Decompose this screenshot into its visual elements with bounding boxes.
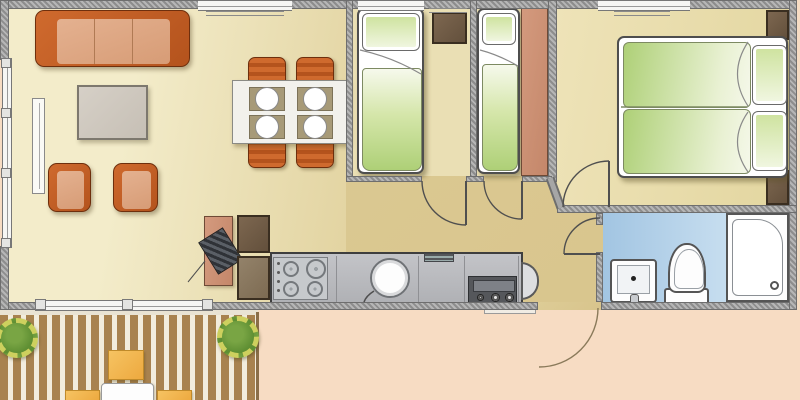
wall-bathroom-left: [596, 252, 603, 302]
four-burner-hob: [273, 257, 328, 300]
window-post: [122, 299, 133, 310]
window-master-top: [598, 0, 690, 11]
sofa-cushion-divider: [94, 19, 95, 64]
armchair-cushion: [57, 171, 84, 209]
armchair-left: [48, 163, 91, 212]
wall-left-upper: [0, 0, 9, 60]
window-post: [202, 299, 213, 310]
wall-bathroom-left-stub: [596, 213, 603, 225]
counter-section-line: [464, 256, 465, 302]
hob-knob: [277, 262, 280, 265]
burner: [306, 259, 326, 279]
wall-bedrooms-bottom-c: [522, 176, 552, 182]
deck-table: [101, 383, 154, 400]
window-post: [1, 238, 11, 248]
deck-chair-right: [157, 390, 192, 400]
single-bed-2: [477, 8, 520, 174]
window-sill: [614, 11, 670, 16]
dining-table: [232, 80, 349, 144]
wall-bedroom1-bedroom2: [470, 0, 477, 182]
round-kitchen-sink: [370, 258, 410, 298]
burner: [283, 281, 299, 297]
window-post: [1, 168, 11, 178]
bed-pillow: [753, 112, 786, 170]
burner: [283, 261, 299, 277]
wall-bedrooms-bottom-b: [466, 176, 484, 182]
plate: [255, 115, 279, 139]
single-bed-1: [357, 8, 424, 174]
counter-section-line: [518, 256, 519, 302]
bed-pillow: [483, 14, 515, 44]
sofa: [35, 10, 190, 67]
bed-blanket: [482, 64, 518, 171]
counter-vent: [424, 253, 454, 262]
kitchen-cabinet-lower: [237, 256, 270, 300]
oven-handle: [473, 280, 515, 292]
mattress-half-bottom: [623, 109, 751, 174]
window-sill: [429, 8, 467, 13]
shower-tray: [726, 213, 789, 302]
toilet-bowl: [668, 243, 706, 293]
plate: [255, 87, 279, 111]
window-post: [1, 58, 11, 68]
window-living-left: [2, 58, 12, 248]
bed-pillow: [363, 14, 419, 50]
wall-bedroom2-master: [548, 0, 557, 182]
floor-plan: [0, 0, 800, 400]
bed-blanket: [362, 68, 422, 171]
armchair-cushion: [122, 171, 151, 209]
wall-master-bathroom: [557, 205, 797, 213]
oven: [468, 276, 517, 303]
tall-wardrobe: [521, 2, 548, 176]
coffee-table: [77, 85, 148, 140]
wall-bedroom1-left: [346, 0, 353, 182]
hob-knob: [277, 280, 280, 283]
window-living-top: [198, 0, 292, 11]
armchair-right: [113, 163, 158, 212]
window-bedroom1-top: [358, 0, 424, 11]
sink-drain: [631, 276, 636, 281]
double-bed: [617, 36, 788, 178]
door-arc-entrance: [539, 308, 598, 367]
wall-left-lower: [0, 246, 9, 310]
deck-chair-top: [108, 350, 144, 380]
hob-knob: [277, 271, 280, 274]
plate: [303, 87, 327, 111]
mattress-half-top: [623, 42, 751, 108]
shower-drain: [770, 281, 779, 290]
sofa-cushions: [57, 19, 170, 64]
counter-section-line: [418, 256, 419, 302]
oven-dial: [505, 293, 514, 302]
burner: [307, 281, 323, 297]
hob-knob: [277, 289, 280, 292]
oven-dial: [491, 293, 500, 302]
bedroom1-wardrobe: [432, 12, 467, 44]
deck-chair-left: [65, 390, 100, 400]
kitchen-cabinet-upper: [237, 215, 270, 253]
plate: [303, 115, 327, 139]
bed-pillow: [753, 46, 786, 104]
window-sill: [206, 11, 284, 16]
radiator: [32, 98, 45, 194]
bathroom-sink: [610, 259, 657, 303]
entrance-door-opening: [537, 302, 602, 310]
planter-shrub-right: [217, 316, 259, 358]
counter-section-line: [336, 256, 337, 302]
window-post: [1, 108, 11, 118]
deck-edge: [256, 312, 259, 400]
toilet-bowl-inner: [674, 249, 704, 289]
window-post: [35, 299, 46, 310]
oven-dial: [477, 294, 484, 301]
wall-right: [789, 0, 797, 310]
sofa-cushion-divider: [132, 19, 133, 64]
wall-bedrooms-bottom-a: [346, 176, 422, 182]
